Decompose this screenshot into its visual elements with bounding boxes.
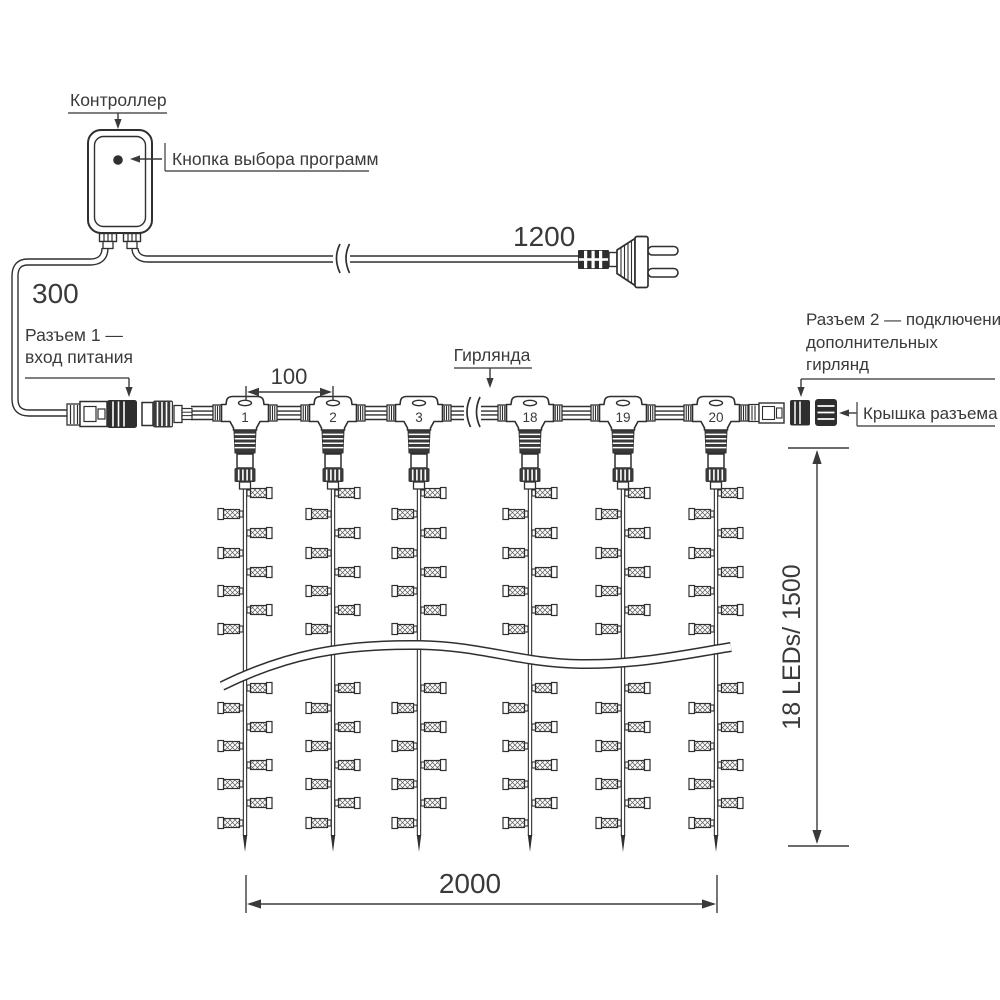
t-connector-slot bbox=[524, 400, 537, 405]
led-lamp bbox=[392, 509, 417, 520]
led-lamp bbox=[306, 624, 331, 635]
dim-curtain-height: 18 LEDs/ 1500 bbox=[778, 448, 849, 846]
garland-cable-break-icon bbox=[467, 397, 480, 427]
garland-label: Гирлянда bbox=[454, 345, 532, 388]
led-lamp bbox=[689, 548, 714, 559]
string-connector-cap bbox=[237, 454, 253, 468]
dim-curtain-height-text: 18 LEDs/ 1500 bbox=[778, 564, 806, 729]
led-lamp bbox=[596, 624, 621, 635]
led-lamp bbox=[392, 818, 417, 829]
led-lamp bbox=[247, 760, 272, 771]
string-connector-cap bbox=[411, 454, 427, 468]
led-lamp bbox=[335, 605, 360, 616]
led-lamp bbox=[503, 586, 528, 597]
led-lamp bbox=[689, 741, 714, 752]
connector-cap-label: Крышка разъема bbox=[839, 402, 998, 426]
dim-drop-spacing-text: 100 bbox=[271, 364, 308, 389]
led-lamp bbox=[596, 818, 621, 829]
led-lamp bbox=[503, 818, 528, 829]
led-lamp bbox=[306, 741, 331, 752]
led-lamp bbox=[306, 703, 331, 714]
led-lamp bbox=[718, 798, 743, 809]
led-lamp bbox=[218, 586, 243, 597]
led-lamp bbox=[421, 683, 446, 694]
plug-prong-bottom bbox=[648, 269, 678, 278]
led-lamp bbox=[306, 548, 331, 559]
arrow-down-icon bbox=[114, 119, 121, 129]
t-connector-slot bbox=[710, 400, 723, 405]
led-lamp bbox=[625, 722, 650, 733]
led-lamp bbox=[218, 548, 243, 559]
dim-curtain-width-text: 2000 bbox=[439, 868, 501, 899]
led-lamp bbox=[218, 741, 243, 752]
program-button-label-text: Кнопка выбора программ bbox=[172, 149, 379, 169]
string-end-tip bbox=[621, 835, 625, 852]
string-connector-nut bbox=[409, 468, 430, 482]
string-connector-nut bbox=[235, 468, 256, 482]
drop-number-label: 19 bbox=[615, 410, 630, 425]
dim-power-cable-text: 1200 bbox=[513, 221, 575, 252]
led-lamp bbox=[218, 779, 243, 790]
arrow-down-icon bbox=[812, 830, 821, 844]
garland-drop: 1 bbox=[213, 397, 277, 853]
t-connector-slot bbox=[327, 400, 340, 405]
arrow-left-icon bbox=[839, 409, 849, 416]
mains-cable-break-icon bbox=[333, 240, 350, 278]
garland-label-text: Гирлянда bbox=[454, 345, 531, 365]
program-select-button[interactable] bbox=[113, 155, 123, 165]
led-lamp bbox=[689, 509, 714, 520]
led-lamp bbox=[218, 624, 243, 635]
string-end-tip bbox=[331, 835, 335, 852]
led-lamp bbox=[718, 567, 743, 578]
led-lamp bbox=[306, 779, 331, 790]
led-lamp bbox=[421, 528, 446, 539]
slack-cable-wave bbox=[222, 645, 731, 686]
led-lamp bbox=[503, 703, 528, 714]
led-lamp bbox=[306, 818, 331, 829]
led-lamp bbox=[596, 548, 621, 559]
led-lamp bbox=[689, 624, 714, 635]
led-lamp bbox=[335, 760, 360, 771]
led-lamp bbox=[596, 586, 621, 597]
string-connector-nut bbox=[613, 468, 634, 482]
led-lamp bbox=[218, 818, 243, 829]
t-connector-slot bbox=[617, 400, 630, 405]
led-lamp bbox=[335, 567, 360, 578]
led-lamp bbox=[247, 683, 272, 694]
led-lamp bbox=[625, 798, 650, 809]
led-lamp bbox=[421, 605, 446, 616]
string-connector-cap bbox=[325, 454, 341, 468]
arrow-down-icon bbox=[797, 387, 804, 397]
garland-drop: 2 bbox=[301, 397, 365, 853]
led-lamp bbox=[532, 605, 557, 616]
string-connector-cap bbox=[522, 454, 538, 468]
drop-number-label: 18 bbox=[522, 410, 537, 425]
led-curtain: 123181920 bbox=[213, 397, 748, 853]
led-lamp bbox=[392, 548, 417, 559]
led-lamp bbox=[596, 741, 621, 752]
garland-drop: 20 bbox=[684, 397, 748, 853]
led-lamp bbox=[596, 703, 621, 714]
dim-curtain-width: 2000 bbox=[246, 868, 717, 913]
led-lamp bbox=[218, 703, 243, 714]
diagram-stage: 123181920 Контроллер Кнопка выбора прогр… bbox=[0, 0, 1000, 1000]
mains-plug bbox=[578, 237, 678, 288]
arrow-left-icon bbox=[247, 899, 261, 908]
connector-1-label: Разъем 1 — вход питания bbox=[25, 325, 133, 397]
connector-1-power-input bbox=[67, 400, 192, 428]
connector-2-label-line1: Разъем 2 — подключение bbox=[806, 310, 1000, 329]
plug-prong-top bbox=[648, 247, 678, 256]
led-lamp bbox=[625, 605, 650, 616]
led-lamp bbox=[392, 624, 417, 635]
cable-gland-left bbox=[100, 234, 117, 249]
string-connector-cap bbox=[615, 454, 631, 468]
led-lamp bbox=[718, 605, 743, 616]
string-end-tip bbox=[417, 835, 421, 852]
led-lamp bbox=[689, 779, 714, 790]
string-connector-nut bbox=[323, 468, 344, 482]
led-lamp bbox=[532, 760, 557, 771]
led-lamp bbox=[335, 528, 360, 539]
led-lamp bbox=[625, 683, 650, 694]
string-connector-nut bbox=[706, 468, 727, 482]
arrow-right-icon bbox=[320, 388, 332, 396]
led-lamp bbox=[718, 528, 743, 539]
led-lamp bbox=[392, 779, 417, 790]
led-lamp bbox=[689, 586, 714, 597]
cable-gland-right bbox=[124, 234, 141, 249]
led-lamp bbox=[247, 567, 272, 578]
led-lamp bbox=[718, 683, 743, 694]
led-lamp bbox=[306, 586, 331, 597]
led-lamp bbox=[247, 605, 272, 616]
led-lamp bbox=[421, 760, 446, 771]
controller-label-text: Контроллер bbox=[70, 90, 167, 110]
drop-number-label: 20 bbox=[708, 410, 723, 425]
drop-number-label: 3 bbox=[415, 410, 423, 425]
led-lamp bbox=[421, 567, 446, 578]
led-lamp bbox=[532, 798, 557, 809]
led-lamp bbox=[596, 779, 621, 790]
connector-1-label-line2: вход питания bbox=[25, 347, 133, 367]
led-lamp bbox=[625, 528, 650, 539]
connector-2-label: Разъем 2 — подключение дополнительных ги… bbox=[797, 310, 1000, 397]
plug-body bbox=[617, 239, 635, 286]
led-lamp bbox=[247, 528, 272, 539]
led-lamp bbox=[532, 567, 557, 578]
string-end-tip bbox=[528, 835, 532, 852]
led-lamp bbox=[689, 818, 714, 829]
led-lamp bbox=[532, 683, 557, 694]
led-lamp bbox=[421, 798, 446, 809]
connector-2-label-line3: гирлянд bbox=[806, 355, 869, 374]
controller-label: Контроллер bbox=[68, 90, 167, 129]
led-curtain-wiring-diagram: 123181920 Контроллер Кнопка выбора прогр… bbox=[0, 0, 1000, 1000]
led-lamp bbox=[718, 722, 743, 733]
led-lamp bbox=[625, 760, 650, 771]
string-end-tip bbox=[714, 835, 718, 852]
string-connector-nut bbox=[520, 468, 541, 482]
program-button-label: Кнопка выбора программ bbox=[130, 143, 379, 171]
connector-1-label-line1: Разъем 1 — bbox=[25, 325, 123, 345]
arrow-up-icon bbox=[812, 450, 821, 464]
t-connector-slot bbox=[413, 400, 426, 405]
led-lamp bbox=[335, 798, 360, 809]
arrow-down-icon bbox=[486, 378, 493, 388]
string-end-tip bbox=[243, 835, 247, 852]
connector-2-label-line2: дополнительных bbox=[806, 333, 938, 352]
led-lamp bbox=[625, 567, 650, 578]
led-lamp bbox=[532, 528, 557, 539]
led-lamp bbox=[718, 760, 743, 771]
led-lamp bbox=[392, 703, 417, 714]
led-lamp bbox=[247, 722, 272, 733]
connector-cap-label-text: Крышка разъема bbox=[863, 404, 998, 423]
led-lamp bbox=[218, 509, 243, 520]
led-lamp bbox=[503, 779, 528, 790]
connector-cap bbox=[815, 399, 837, 426]
led-lamp bbox=[392, 741, 417, 752]
led-lamp bbox=[689, 703, 714, 714]
dim-drop-spacing: 100 bbox=[246, 364, 333, 401]
arrow-left-icon bbox=[247, 388, 259, 396]
garland-drop: 19 bbox=[591, 397, 655, 853]
led-lamp bbox=[335, 683, 360, 694]
led-lamp bbox=[503, 624, 528, 635]
controller-box bbox=[88, 130, 152, 249]
connector-2-output bbox=[749, 400, 810, 426]
arrow-down-icon bbox=[125, 387, 132, 397]
led-lamp bbox=[335, 722, 360, 733]
string-connector-cap bbox=[708, 454, 724, 468]
drop-number-label: 2 bbox=[329, 410, 337, 425]
led-lamp bbox=[392, 586, 417, 597]
led-lamp bbox=[306, 509, 331, 520]
led-lamp bbox=[532, 722, 557, 733]
led-lamp bbox=[503, 741, 528, 752]
led-lamp bbox=[247, 798, 272, 809]
led-lamp bbox=[596, 509, 621, 520]
arrow-right-icon bbox=[702, 899, 716, 908]
t-connector-slot bbox=[239, 400, 252, 405]
led-lamp bbox=[503, 509, 528, 520]
garland-drop: 18 bbox=[498, 397, 562, 853]
dim-input-cable-text: 300 bbox=[32, 278, 79, 309]
led-lamp bbox=[421, 722, 446, 733]
led-lamp bbox=[503, 548, 528, 559]
drop-number-label: 1 bbox=[241, 410, 249, 425]
garland-drop: 3 bbox=[387, 397, 451, 853]
plug-strain-relief bbox=[578, 250, 609, 269]
